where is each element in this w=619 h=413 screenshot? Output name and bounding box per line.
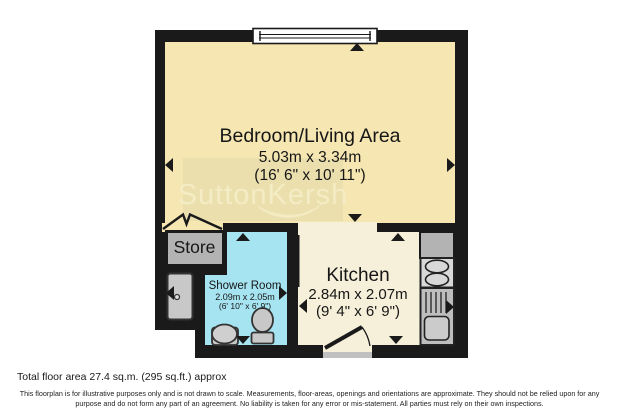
shower-room-label: Shower Room [209,280,282,292]
hob-fixture [421,258,455,288]
kitchen-dim-imperial: (9' 4" x 6' 9") [316,303,400,320]
store-label: Store [174,237,216,257]
bedroom-label: Bedroom/Living Area [219,125,400,147]
disclaimer: This floorplan is for illustrative purpo… [0,389,619,408]
basin-fixture [212,325,238,346]
kitchen-opening [298,222,377,233]
bedroom-dim-imperial: (16' 6" x 10' 11") [254,167,365,184]
kitchen-counter [420,232,454,345]
wc-fixture [252,308,274,344]
floorplan-page: SuttonKersh [0,0,619,413]
sink-drainer-fixture [421,288,455,345]
worktop [420,232,454,258]
disclaimer-line-2: purpose and do not form any part of an a… [0,399,619,409]
bedroom-dim-metric: 5.03m x 3.34m [259,149,362,166]
kitchen-label: Kitchen [326,265,389,286]
total-floor-area-text: Total floor area 27.4 sq.m. (295 sq.ft.)… [17,371,227,383]
floorplan-canvas: SuttonKersh [0,0,619,413]
door-threshold [323,352,372,358]
disclaimer-line-1: This floorplan is for illustrative purpo… [0,389,619,399]
kitchen-dim-metric: 2.84m x 2.07m [308,286,407,303]
shower-dim-imperial: (6' 10" x 6' 9") [219,301,271,311]
kitchen-door-leaf [296,235,300,287]
window [253,29,377,44]
